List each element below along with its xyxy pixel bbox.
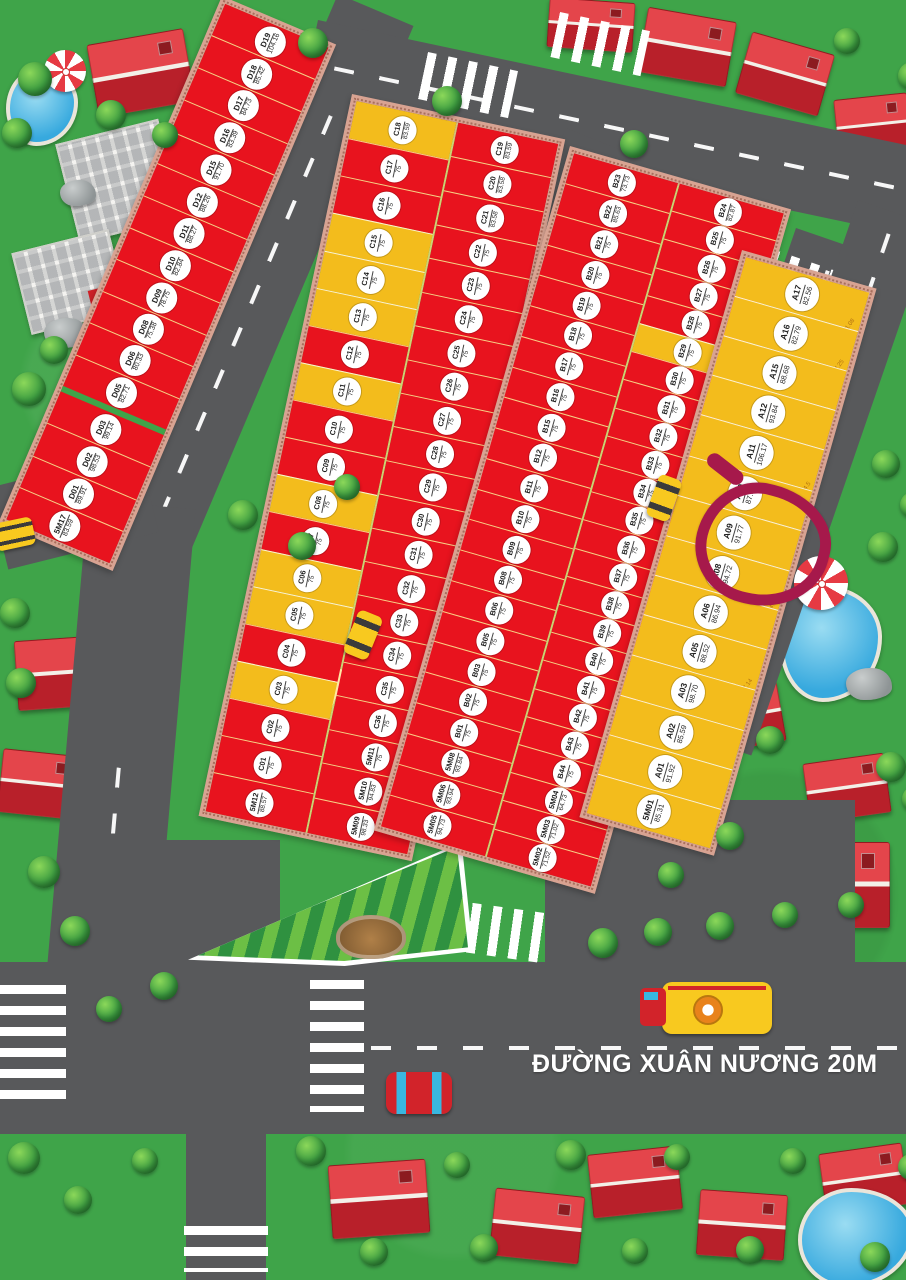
pool-icon [798,1188,906,1280]
plot-label: A1588.68 [759,352,801,394]
plot-label: 5M1094.83 [352,775,385,808]
plot-label: C1883.59 [386,114,419,147]
tree-icon [64,1186,92,1214]
tree-icon [150,972,178,1000]
crosswalk [310,980,364,1112]
tree-icon [470,1234,498,1262]
garden-mound-icon [336,915,406,959]
plot-label: C1983.59 [488,133,521,166]
house-icon [328,1159,431,1240]
tree-icon [772,902,798,928]
tree-icon [12,372,46,406]
tree-icon [40,336,68,364]
tree-icon [860,1242,890,1272]
rock-icon [846,668,892,700]
crosswalk [184,1226,268,1272]
tree-icon [28,856,60,888]
plot-label: A1682.79 [770,312,812,354]
plot-label: C2083.58 [481,168,514,201]
house-icon [637,7,737,88]
tree-icon [96,996,122,1022]
tree-icon [588,928,618,958]
plot-label: C3575 [373,673,406,706]
plot-label: C0575 [283,599,316,632]
tree-icon [6,668,36,698]
plot-label: C0175 [251,748,284,781]
plot-label: C2875 [423,438,456,471]
tree-icon [152,122,178,148]
tree-icon [296,1136,326,1166]
plot-label: A1293.84 [747,392,789,434]
tree-icon [706,912,734,940]
plot-label: 5M0998.33 [344,810,377,843]
rock-icon [60,180,96,206]
plot-label: A0686.94 [690,592,732,634]
plot-label: C1175 [330,375,363,408]
plot-label: C3675 [366,707,399,740]
crosswalk [550,12,650,76]
tree-icon [60,916,90,946]
plot-label: A11106.17 [736,432,778,474]
tree-icon [902,786,906,812]
plot-label: 5M0271.52 [525,841,560,876]
plot-label: C2575 [445,337,478,370]
plot-label: C1375 [346,301,379,334]
plot-label: C0475 [275,636,308,669]
plot-label: A0398.70 [667,671,709,713]
tree-icon [2,118,32,148]
tree-icon [288,532,316,560]
tree-icon [736,1236,764,1264]
tree-icon [444,1152,470,1178]
plot-label: C3175 [402,539,435,572]
tree-icon [780,1148,806,1174]
tree-icon [622,1238,648,1264]
plot-label: 5M0594.73 [420,809,455,844]
plot-label: C2275 [466,236,499,269]
tree-icon [8,1142,40,1174]
plot-label: 5M1288.57 [243,786,276,819]
tree-icon [834,28,860,54]
plot-label: C1275 [338,338,371,371]
plot-label: A0285.59 [656,711,698,753]
house-icon [735,31,835,116]
plot-label: C2375 [459,269,492,302]
tree-icon [868,532,898,562]
plot-label: 5M1175 [359,740,392,773]
plot-label: C1475 [354,263,387,296]
bus-cab [640,988,666,1026]
tree-icon [620,130,648,158]
plot-label: C2975 [416,471,449,504]
bus-icon [662,982,772,1034]
plot-label: C1575 [362,226,395,259]
tree-icon [360,1238,388,1266]
plot-label: C2475 [452,303,485,336]
crosswalk [0,985,66,1107]
tree-icon [132,1148,158,1174]
plot-label: 5M0185.31 [633,790,675,832]
bus-logo-icon [693,995,723,1025]
plot-label: C3075 [409,505,442,538]
tree-icon [228,500,258,530]
tree-icon [838,892,864,918]
plot-label: C0375 [267,674,300,707]
plot-label: C0675 [291,562,324,595]
plot-label: C3275 [395,572,428,605]
plot-label: C2183.58 [474,202,507,235]
tree-icon [334,474,360,500]
tree-icon [756,726,784,754]
plot-label: C2675 [438,370,471,403]
plot-label: C1075 [322,413,355,446]
bus-stripe [668,986,766,990]
tree-icon [876,752,906,782]
plot-label: A1782.56 [781,273,823,315]
plot-label: C0275 [259,711,292,744]
tree-icon [432,86,462,116]
tree-icon [96,100,126,130]
plot-label: A0588.52 [678,631,720,673]
tree-icon [898,62,906,90]
tree-icon [872,450,900,478]
tree-icon [900,492,906,518]
tree-icon [664,1144,690,1170]
plot-label: A0191.92 [644,751,686,793]
plot-label: C1675 [370,189,403,222]
tree-icon [298,28,328,58]
tree-icon [18,62,52,96]
car-icon [386,1072,452,1114]
plot-label: C2775 [431,404,464,437]
plot-label: C3475 [381,639,414,672]
tree-icon [556,1140,586,1170]
tree-icon [644,918,672,946]
street-name-label: ĐƯỜNG XUÂN NƯƠNG 20M [532,1050,906,1079]
tree-icon [658,862,684,888]
plot-label: C3375 [388,606,421,639]
plot-label: 5M1783.59 [44,505,85,546]
tree-icon [0,598,30,628]
site-map: D19104.16D1885.42D1784.73D1683.39D1591.7… [0,0,906,1280]
plot-label: C1775 [378,152,411,185]
tree-icon [716,822,744,850]
house-icon [489,1187,586,1264]
